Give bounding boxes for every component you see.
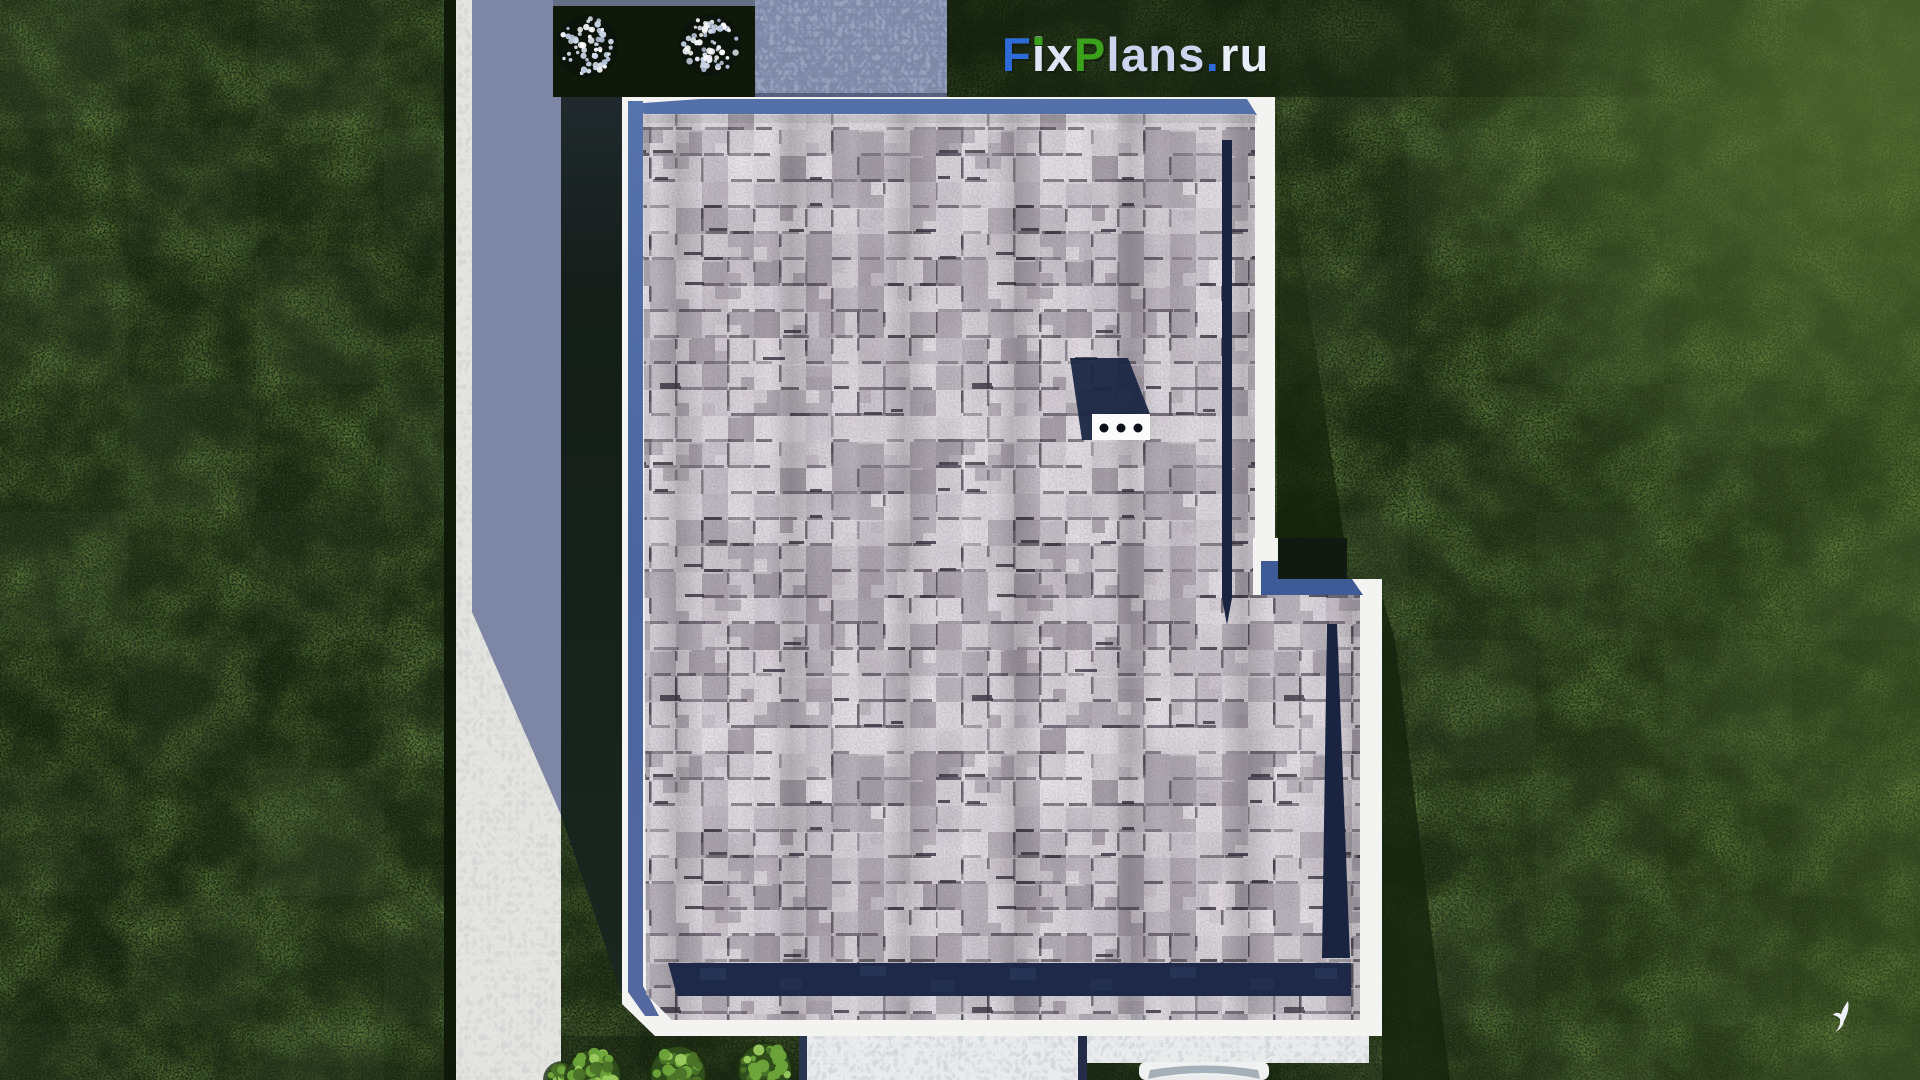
- svg-text:FixPlans.ru: FixPlans.ru: [1002, 28, 1270, 81]
